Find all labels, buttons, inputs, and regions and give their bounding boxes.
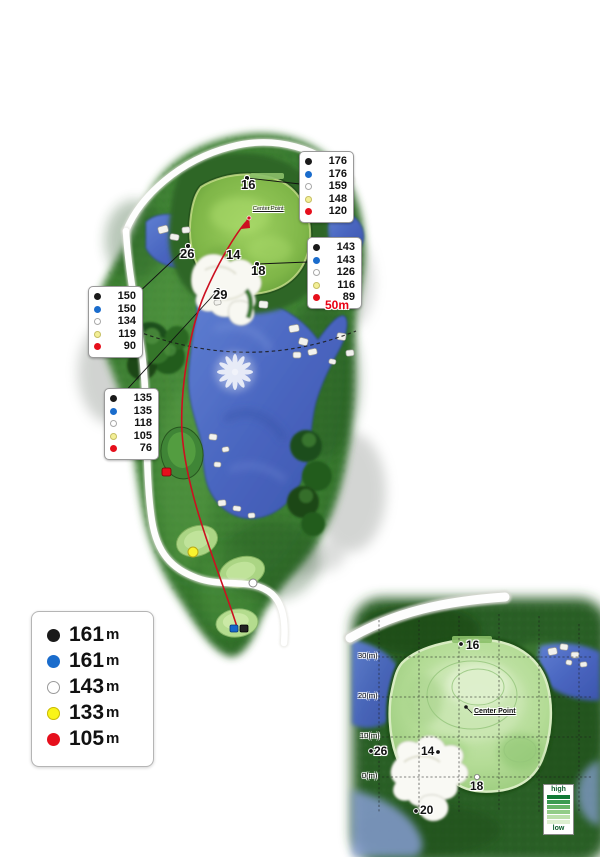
blue-tee-marker [230, 625, 238, 632]
distance-value: 118 [117, 418, 152, 429]
distance-value: 159 [312, 181, 347, 192]
blue-tee-dot-icon [110, 408, 117, 415]
elevation-scale: high low [543, 784, 574, 835]
green-depth-back-label: 16 [241, 178, 255, 192]
distance-value: 120 [312, 206, 347, 217]
yellow-tee-dot-icon [110, 433, 117, 440]
red-tee-marker [162, 468, 171, 476]
distance-row: 135 [110, 393, 152, 405]
distance-row: 119 [94, 329, 136, 341]
white-tee-dot-icon [94, 318, 101, 325]
distance-value: 135 [117, 393, 152, 404]
legend-unit: m [106, 625, 119, 645]
distance-value: 176 [312, 156, 347, 167]
fairway-label: 29 [213, 288, 227, 302]
legend-unit: m [106, 703, 119, 723]
elevation-bar [547, 815, 570, 819]
legend-distance: 105 [69, 729, 104, 749]
yellow-tee-dot-icon [94, 331, 101, 338]
fountain-icon [215, 352, 255, 392]
distance-box-left: 150 150 134 119 90 [88, 286, 143, 358]
distance-row: 134 [94, 316, 136, 328]
black-tee-marker [240, 625, 248, 632]
legend-distance: 161 [69, 625, 104, 645]
red-tee-dot-icon [47, 733, 60, 746]
legend-row: 105m [47, 729, 153, 749]
legend-unit: m [106, 729, 119, 749]
legend-row: 133m [47, 703, 153, 723]
red-tee-dot-icon [305, 208, 312, 215]
distance-row: 116 [313, 280, 355, 292]
distance-row: 105 [110, 431, 152, 443]
inset-green-front-label: 18 [470, 780, 483, 793]
distance-row: 148 [305, 194, 347, 206]
distance-row: 76 [110, 443, 152, 455]
inset-axis-10m: 10(m) [360, 732, 380, 740]
white-tee-dot-icon [110, 420, 117, 427]
black-tee-dot-icon [313, 244, 320, 251]
distance-row: 150 [94, 304, 136, 316]
blue-tee-dot-icon [305, 171, 312, 178]
inset-below-label: 20 [420, 804, 433, 817]
inset-axis-20m: 20(m) [358, 692, 378, 700]
distance-value: 76 [117, 443, 152, 454]
blue-tee-dot-icon [313, 257, 320, 264]
distance-row: 143 [313, 242, 355, 254]
arc-distance-label: 50m [325, 299, 349, 312]
yellow-tee-dot-icon [305, 196, 312, 203]
distance-value: 126 [320, 267, 355, 278]
distance-row: 90 [94, 341, 136, 353]
distance-row: 126 [313, 267, 355, 279]
elevation-high-label: high [551, 786, 566, 794]
elevation-bar [547, 820, 570, 824]
distance-row: 118 [110, 418, 152, 430]
white-tee-marker [249, 579, 257, 587]
elevation-bar [547, 800, 570, 804]
distance-row: 120 [305, 206, 347, 218]
distance-row: 150 [94, 291, 136, 303]
distance-value: 150 [101, 304, 136, 315]
distance-value: 143 [320, 255, 355, 266]
distance-row: 176 [305, 156, 347, 168]
center-point-label: Center Point [253, 206, 284, 212]
black-tee-dot-icon [305, 158, 312, 165]
distance-row: 159 [305, 181, 347, 193]
distance-value: 105 [117, 431, 152, 442]
yellow-tee-marker [188, 547, 198, 557]
black-tee-dot-icon [47, 629, 60, 642]
golf-hole-guide-page: 176 176 159 148 120 143 143 126 116 89 1… [0, 0, 600, 857]
inset-axis-30m: 30(m) [358, 652, 378, 660]
legend-unit: m [106, 677, 119, 697]
distance-value: 116 [320, 280, 355, 291]
red-tee-dot-icon [313, 294, 320, 301]
distance-value: 134 [101, 316, 136, 327]
distance-row: 135 [110, 406, 152, 418]
white-tee-dot-icon [305, 183, 312, 190]
inset-center-point-label: Center Point [474, 708, 516, 716]
white-tee-dot-icon [47, 681, 60, 694]
red-tee-dot-icon [94, 343, 101, 350]
blue-tee-dot-icon [94, 306, 101, 313]
distance-value: 90 [101, 341, 136, 352]
legend-distance: 161 [69, 651, 104, 671]
legend-row: 161m [47, 625, 153, 645]
distance-value: 143 [320, 242, 355, 253]
legend-row: 143m [47, 677, 153, 697]
distance-value: 119 [101, 329, 136, 340]
distance-value: 150 [101, 291, 136, 302]
legend-distance: 143 [69, 677, 104, 697]
yellow-tee-dot-icon [313, 282, 320, 289]
elevation-bar [547, 805, 570, 809]
yellow-tee-dot-icon [47, 707, 60, 720]
distance-value: 176 [312, 169, 347, 180]
black-tee-dot-icon [94, 293, 101, 300]
legend-unit: m [106, 651, 119, 671]
green-width-left-label: 26 [180, 247, 194, 261]
inset-green-left-label: 26 [374, 745, 387, 758]
elevation-bar [547, 795, 570, 799]
legend-distance: 133 [69, 703, 104, 723]
inset-axis-0m: 0(m) [362, 772, 377, 780]
black-tee-dot-icon [110, 395, 117, 402]
distance-value: 148 [312, 194, 347, 205]
distance-row: 143 [313, 255, 355, 267]
distance-box-lower-left: 135 135 118 105 76 [104, 388, 159, 460]
legend-row: 161m [47, 651, 153, 671]
center-point-dot [247, 216, 251, 220]
white-tee-dot-icon [313, 269, 320, 276]
inset-green-back-label: 16 [466, 639, 479, 652]
distance-row: 176 [305, 169, 347, 181]
distance-box-green-back: 176 176 159 148 120 [299, 151, 354, 223]
distance-value: 135 [117, 406, 152, 417]
blue-tee-dot-icon [47, 655, 60, 668]
green-front-label: 18 [251, 264, 265, 278]
green-mid-label: 14 [226, 248, 240, 262]
elevation-low-label: low [553, 825, 565, 833]
elevation-bar [547, 810, 570, 814]
tee-distance-legend: 161m 161m 143m 133m 105m [31, 611, 154, 767]
red-tee-dot-icon [110, 445, 117, 452]
inset-green-mid-label: 14 [421, 745, 434, 758]
